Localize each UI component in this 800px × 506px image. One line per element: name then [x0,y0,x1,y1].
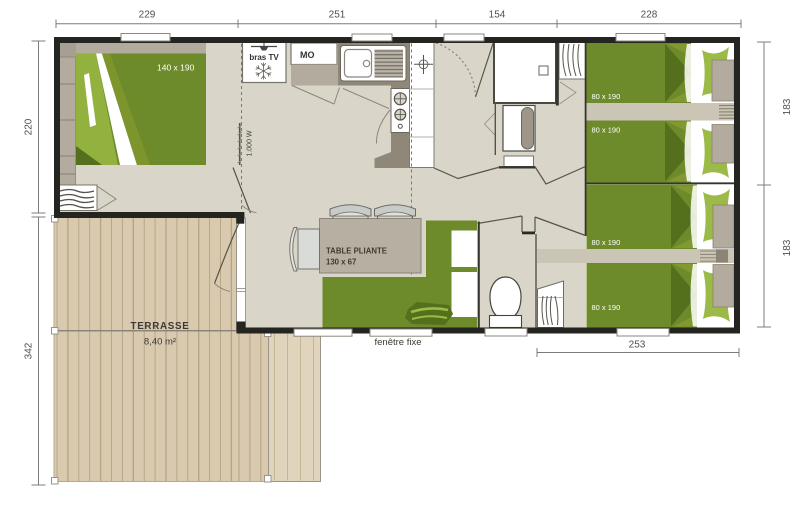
svg-text:130 x 67: 130 x 67 [326,258,356,267]
svg-text:80 x 190: 80 x 190 [592,303,621,312]
svg-text:fenêtre fixe: fenêtre fixe [375,337,422,348]
svg-text:220: 220 [24,118,35,135]
svg-text:MO: MO [300,50,315,60]
svg-text:8,40 m²: 8,40 m² [144,337,176,348]
svg-text:80 x 190: 80 x 190 [592,126,621,135]
svg-text:TERRASSE: TERRASSE [131,321,190,332]
svg-text:253: 253 [629,340,646,351]
svg-text:183: 183 [782,239,793,256]
svg-text:183: 183 [782,98,793,115]
svg-text:342: 342 [24,342,35,359]
svg-text:1.000 W: 1.000 W [247,130,254,156]
svg-text:80 x 190: 80 x 190 [592,238,621,247]
svg-text:154: 154 [489,10,506,21]
svg-text:140 x 190: 140 x 190 [157,63,195,73]
svg-text:bras TV: bras TV [249,53,279,62]
svg-text:228: 228 [641,10,658,21]
svg-text:80 x 190: 80 x 190 [592,92,621,101]
svg-text:229: 229 [139,10,156,21]
svg-text:251: 251 [329,10,346,21]
svg-text:TABLE PLIANTE: TABLE PLIANTE [326,247,387,256]
